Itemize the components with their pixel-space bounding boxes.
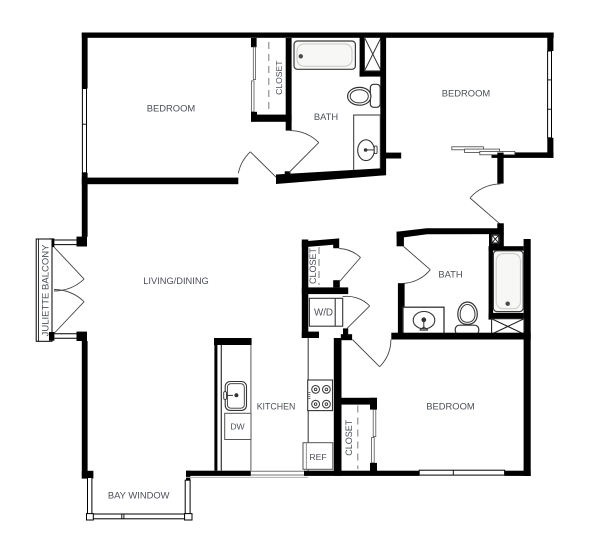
svg-text:DW: DW: [230, 422, 245, 432]
svg-text:BEDROOM: BEDROOM: [426, 401, 475, 412]
svg-text:KITCHEN: KITCHEN: [257, 402, 296, 412]
svg-text:LIVING/DINING: LIVING/DINING: [143, 276, 209, 286]
svg-text:BEDROOM: BEDROOM: [442, 88, 491, 99]
svg-text:BATH: BATH: [438, 268, 462, 279]
svg-text:W/D: W/D: [314, 308, 333, 319]
svg-text:BAY WINDOW: BAY WINDOW: [108, 489, 170, 500]
svg-text:CLOSET: CLOSET: [274, 60, 284, 95]
svg-text:BEDROOM: BEDROOM: [147, 102, 196, 113]
svg-text:CLOSET: CLOSET: [344, 419, 354, 456]
svg-text:JULIETTE BALCONY: JULIETTE BALCONY: [41, 244, 52, 337]
svg-text:BATH: BATH: [314, 111, 338, 122]
svg-text:CLOSET: CLOSET: [308, 247, 318, 284]
svg-text:REF: REF: [309, 452, 326, 462]
